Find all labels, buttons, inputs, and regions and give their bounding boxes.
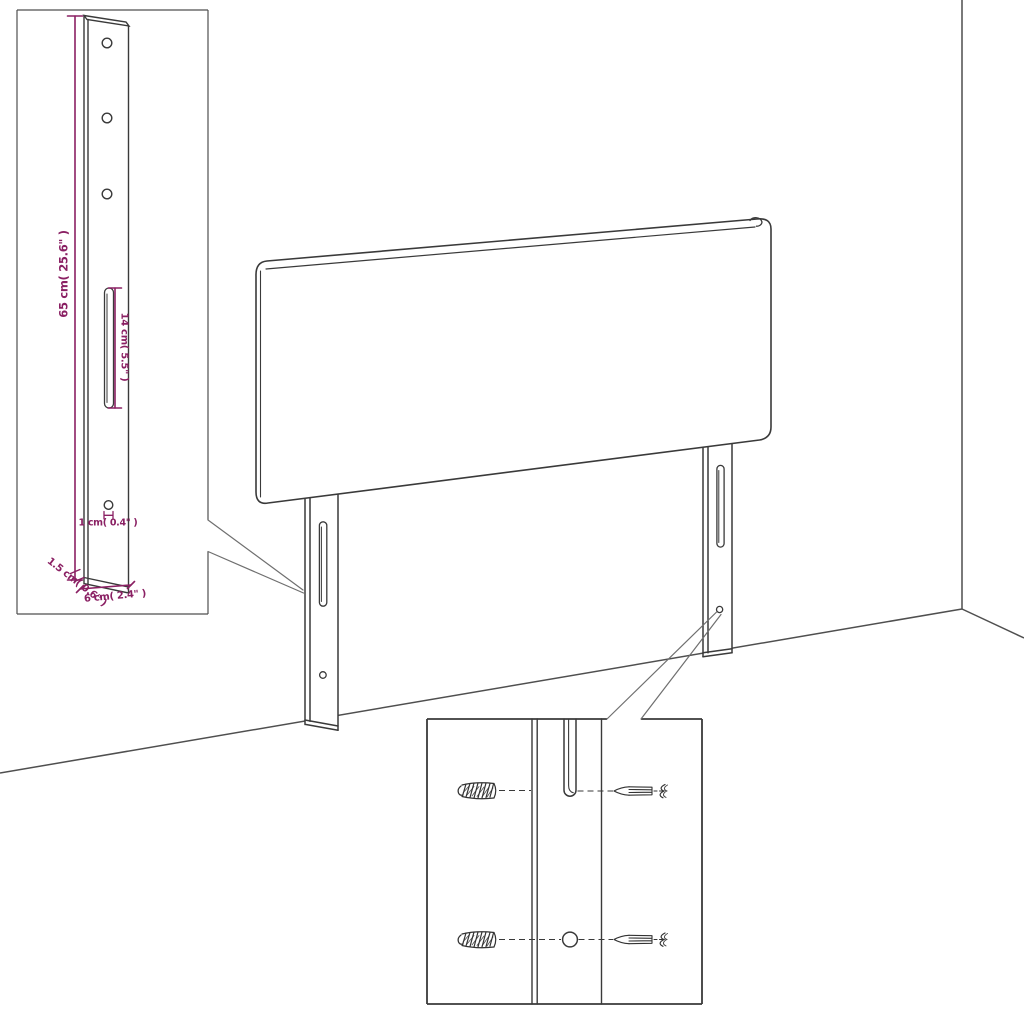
right-leg-hole (717, 606, 723, 612)
headboard-panel-face (256, 219, 771, 503)
bracket-callout-line-2 (208, 552, 304, 594)
left-leg (305, 476, 338, 731)
bracket-callout-line-1 (208, 520, 303, 590)
dim-slot-label: 14 cm( 5.5" ) (119, 313, 130, 382)
headboard-panel (256, 218, 771, 504)
mounting-callout-line-2 (641, 615, 721, 720)
diagram-svg: 65 cm( 25.6" ) 14 cm( 5.5" ) 1 cm( 0.4" … (0, 0, 1024, 1024)
dim-hole-label: 1 cm( 0.4" ) (79, 518, 138, 529)
bracket-detail-view: 65 cm( 25.6" ) 14 cm( 5.5" ) 1 cm( 0.4" … (17, 10, 208, 614)
bracket-callout-lines (208, 520, 304, 593)
mounting-detail-view (427, 719, 702, 1004)
mounting-callout-line-1 (607, 612, 717, 719)
left-leg-hole (320, 672, 327, 679)
dim-height-label: 65 cm( 25.6" ) (57, 230, 71, 318)
headboard-dimension-diagram: 65 cm( 25.6" ) 14 cm( 5.5" ) 1 cm( 0.4" … (0, 0, 1024, 1024)
floor-line-right (962, 609, 1024, 638)
right-leg (703, 427, 732, 659)
